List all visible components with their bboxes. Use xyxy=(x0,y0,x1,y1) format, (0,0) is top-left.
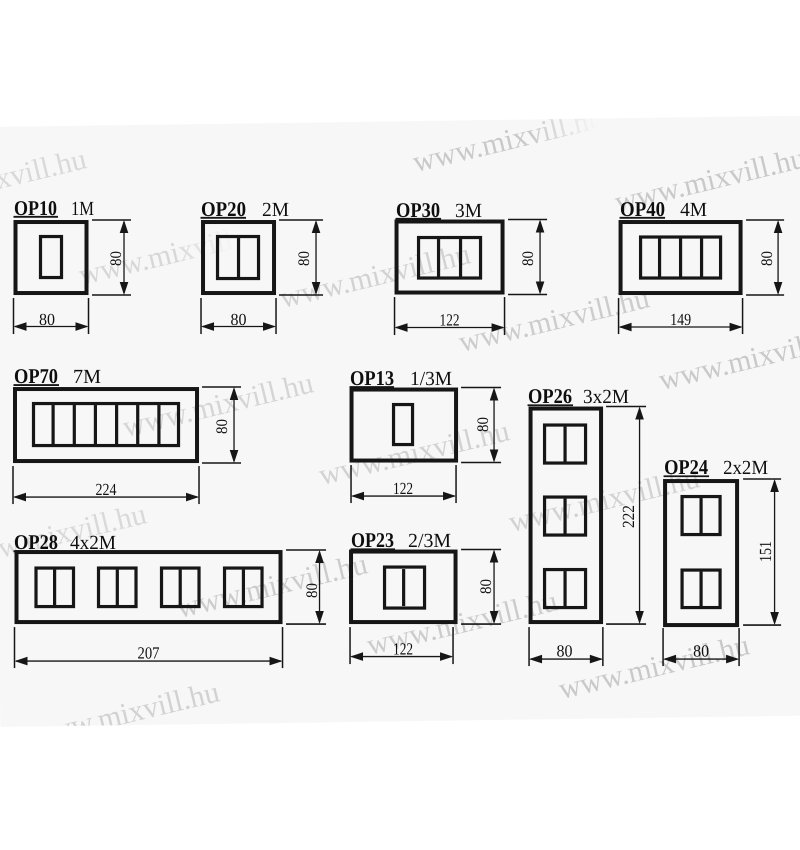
svg-text:122: 122 xyxy=(393,479,413,498)
svg-text:149: 149 xyxy=(670,310,691,329)
svg-text:2x2M: 2x2M xyxy=(723,457,768,479)
svg-text:80: 80 xyxy=(693,642,709,661)
svg-text:207: 207 xyxy=(138,644,160,663)
svg-text:80: 80 xyxy=(557,642,573,661)
svg-text:2M: 2M xyxy=(262,199,289,221)
svg-text:122: 122 xyxy=(393,640,413,659)
svg-text:80: 80 xyxy=(39,310,55,329)
svg-text:4M: 4M xyxy=(680,199,707,221)
svg-text:80: 80 xyxy=(478,579,495,594)
svg-text:80: 80 xyxy=(296,251,313,266)
svg-text:80: 80 xyxy=(231,310,247,329)
svg-text:80: 80 xyxy=(759,251,776,266)
svg-text:80: 80 xyxy=(475,417,492,432)
svg-text:2/3M: 2/3M xyxy=(408,530,451,552)
svg-text:122: 122 xyxy=(440,311,460,330)
svg-text:7M: 7M xyxy=(73,366,101,388)
svg-text:80: 80 xyxy=(520,251,537,266)
svg-text:222: 222 xyxy=(619,505,638,528)
svg-text:80: 80 xyxy=(108,251,125,266)
svg-text:1M: 1M xyxy=(71,198,94,220)
svg-text:80: 80 xyxy=(304,583,321,598)
svg-text:224: 224 xyxy=(96,480,117,499)
svg-text:151: 151 xyxy=(756,541,775,562)
svg-text:3x2M: 3x2M xyxy=(583,386,629,408)
svg-text:80: 80 xyxy=(214,419,231,434)
svg-text:3M: 3M xyxy=(455,200,482,222)
svg-text:1/3M: 1/3M xyxy=(410,368,452,390)
